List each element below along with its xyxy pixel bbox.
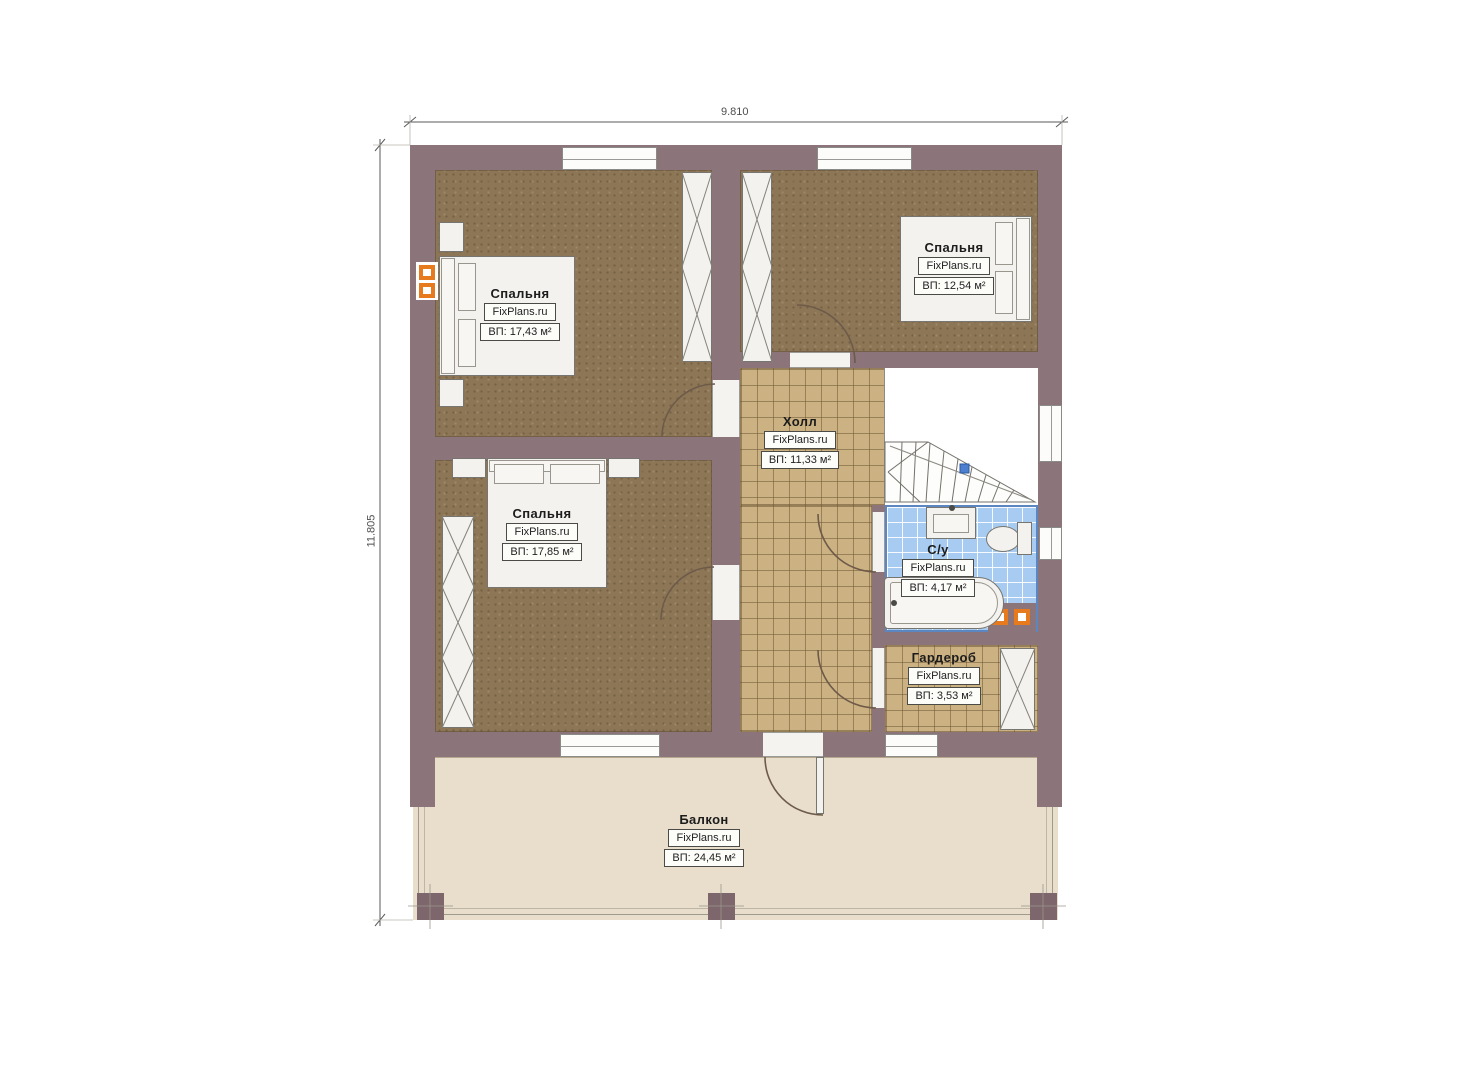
room-name: Балкон (679, 812, 728, 827)
room-label-bedroom-tr: Спальня FixPlans.ru ВП: 12,54 м² (902, 240, 1006, 295)
bed-headboard (441, 258, 455, 374)
wardrobe-unit (682, 172, 712, 362)
room-brand: FixPlans.ru (506, 523, 577, 541)
room-label-bedroom-bl: Спальня FixPlans.ru ВП: 17,85 м² (490, 506, 594, 561)
toilet-bowl (986, 526, 1020, 552)
nightstand (439, 379, 464, 407)
hall-floor-lower (740, 505, 872, 732)
room-area: ВП: 3,53 м² (907, 687, 980, 705)
room-label-hall: Холл FixPlans.ru ВП: 11,33 м² (748, 414, 852, 469)
nightstand (608, 458, 640, 478)
floor-plan-canvas: 9.810 11.805 Спальня FixPlans.ru ВП: 17,… (0, 0, 1474, 1080)
faucet-icon (891, 600, 897, 606)
room-label-wardrobe: Гардероб FixPlans.ru ВП: 3,53 м² (896, 650, 992, 705)
wardrobe-unit (742, 172, 772, 362)
bedroom-tr-door-opening (790, 352, 850, 368)
radiator-icon (419, 265, 435, 280)
stair-void (885, 368, 1038, 505)
sink-basin (933, 514, 969, 533)
bed-pillow (494, 464, 544, 484)
bedroom-tl-door-opening (712, 380, 740, 437)
toilet-tank (1017, 522, 1032, 555)
window-right-bathroom (1039, 527, 1062, 560)
bathroom-door-opening (872, 512, 885, 572)
room-area: ВП: 24,45 м² (664, 849, 743, 867)
dimension-width-label: 9.810 (718, 106, 752, 118)
nightstand (439, 222, 464, 252)
room-name: Холл (783, 414, 817, 429)
balcony-wall-stub-left (410, 757, 435, 807)
sink (926, 507, 976, 539)
window-top-right (817, 147, 912, 170)
balcony-pillar-center (708, 893, 735, 920)
radiator-icon (1014, 609, 1030, 625)
nightstand (452, 458, 486, 478)
window-right-stairs (1039, 405, 1062, 462)
room-brand: FixPlans.ru (908, 667, 979, 685)
room-label-bedroom-tl: Спальня FixPlans.ru ВП: 17,43 м² (468, 286, 572, 341)
room-area: ВП: 4,17 м² (901, 579, 974, 597)
window-top-left (562, 147, 657, 170)
bed-pillow (550, 464, 600, 484)
room-area: ВП: 12,54 м² (914, 277, 993, 295)
balcony-pillar-right (1030, 893, 1057, 920)
window-bottom-right (885, 734, 938, 757)
room-label-bathroom: С/у FixPlans.ru ВП: 4,17 м² (890, 542, 986, 597)
room-name: Спальня (513, 506, 572, 521)
faucet-icon (949, 505, 955, 511)
room-brand: FixPlans.ru (668, 829, 739, 847)
balcony-door-leaf (816, 757, 824, 814)
room-brand: FixPlans.ru (918, 257, 989, 275)
room-name: Гардероб (912, 650, 977, 665)
room-name: С/у (927, 542, 948, 557)
room-brand: FixPlans.ru (484, 303, 555, 321)
balcony-wall-stub-right (1037, 757, 1062, 807)
dimension-height-label: 11.805 (365, 512, 377, 551)
wardrobe-unit (442, 516, 474, 728)
room-area: ВП: 17,43 м² (480, 323, 559, 341)
room-area: ВП: 11,33 м² (761, 451, 839, 469)
window-bottom-left (560, 734, 660, 757)
room-brand: FixPlans.ru (902, 559, 973, 577)
bedroom-bl-door-opening (712, 565, 740, 620)
balcony-door-opening (763, 732, 823, 757)
bed-headboard (1016, 218, 1030, 320)
room-label-balcony: Балкон FixPlans.ru ВП: 24,45 м² (652, 812, 756, 867)
wardrobe-unit (1000, 648, 1035, 730)
room-name: Спальня (491, 286, 550, 301)
balcony-pillar-left (417, 893, 444, 920)
radiator-icon (419, 283, 435, 298)
room-brand: FixPlans.ru (764, 431, 835, 449)
wardrobe-door-opening (872, 648, 885, 708)
room-area: ВП: 17,85 м² (502, 543, 581, 561)
room-name: Спальня (925, 240, 984, 255)
